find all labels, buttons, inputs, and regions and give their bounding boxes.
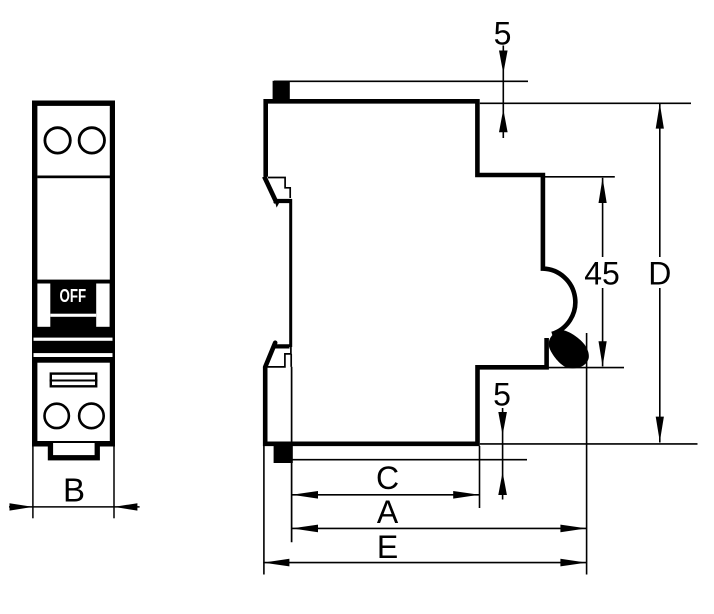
svg-text:OFF: OFF — [59, 286, 86, 307]
svg-text:5: 5 — [494, 15, 512, 51]
svg-text:45: 45 — [584, 255, 620, 291]
svg-text:D: D — [648, 255, 671, 291]
svg-text:C: C — [376, 460, 399, 496]
svg-text:E: E — [377, 529, 398, 565]
svg-text:A: A — [377, 494, 399, 530]
svg-text:5: 5 — [493, 376, 511, 412]
svg-text:B: B — [63, 471, 85, 508]
